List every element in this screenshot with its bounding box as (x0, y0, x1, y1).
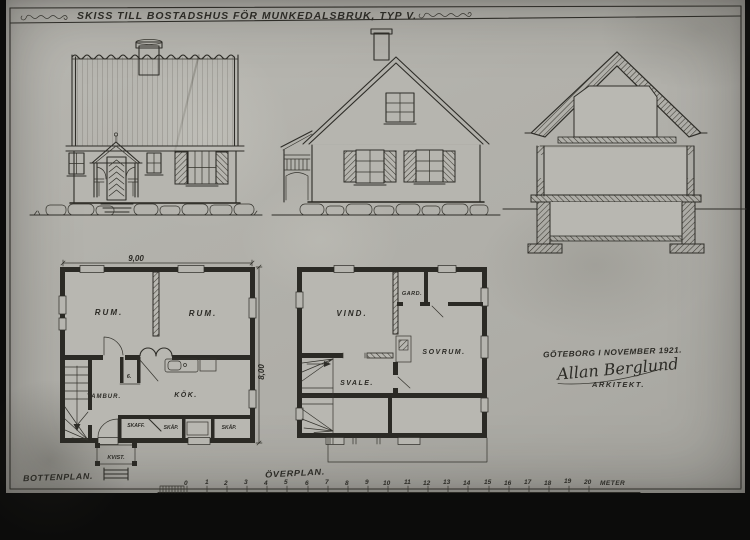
room-label-closet-6: 6. (127, 374, 132, 380)
scale-tick-10: 10 (383, 480, 391, 487)
scale-tick-9: 9 (365, 479, 369, 486)
scale-tick-7: 7 (325, 479, 329, 486)
elevation-front (30, 40, 262, 216)
room-label-kok: KÖK. (174, 390, 198, 399)
floor-plan-overplan: VIND. GARD. SOVRUM. SVALE. (296, 266, 488, 463)
scale-tick-17: 17 (524, 479, 532, 486)
scale-tick-4: 4 (263, 480, 268, 487)
scale-tick-13: 13 (443, 479, 451, 486)
room-label-rum-left: RUM. (95, 308, 123, 317)
ornament-squiggle-left (21, 15, 67, 20)
architectural-drawing: SKISS TILL BOSTADSHUS FÖR MUNKEDALSBRUK,… (0, 0, 750, 501)
scale-tick-12: 12 (423, 480, 431, 487)
dimension-height: 8,00 (257, 364, 266, 380)
room-label-kvist: KVIST. (107, 455, 125, 461)
room-label-gard: GARD. (402, 291, 422, 297)
cross-section (503, 52, 746, 253)
scale-tick-2: 2 (223, 480, 228, 487)
room-label-svale: SVALE. (340, 380, 374, 387)
room-label-skap-1: SKÅP. (164, 424, 179, 431)
scale-tick-19: 19 (564, 478, 572, 485)
room-label-skaff: SKAFF. (127, 423, 145, 429)
signature-block: GÖTEBORG I NOVEMBER 1921. Allan Berglund… (543, 345, 682, 389)
foundation-stones (46, 204, 254, 215)
scale-tick-11: 11 (404, 479, 411, 486)
scale-tick-8: 8 (345, 480, 349, 487)
scale-tick-3: 3 (244, 479, 248, 486)
photograph-background: SKISS TILL BOSTADSHUS FÖR MUNKEDALSBRUK,… (0, 0, 750, 501)
room-label-sovrum: SOVRUM. (422, 349, 465, 356)
scale-tick-14: 14 (463, 480, 471, 487)
scale-tick-16: 16 (504, 480, 512, 487)
architect-role: ARKITEKT. (591, 380, 645, 389)
scale-tick-1: 1 (205, 479, 209, 486)
overplan-label: ÖVERPLAN. (265, 466, 325, 479)
scale-tick-0: 0 (184, 480, 188, 487)
room-label-vind: VIND. (336, 309, 367, 318)
scale-tick-5: 5 (284, 479, 288, 486)
scale-tick-20: 20 (583, 479, 592, 486)
scale-unit: METER (600, 480, 625, 487)
bottenplan-label: BOTTENPLAN. (23, 471, 93, 483)
drawing-title: SKISS TILL BOSTADSHUS FÖR MUNKEDALSBRUK,… (77, 9, 417, 22)
scale-tick-18: 18 (544, 480, 552, 487)
room-label-tambur: TAMBUR. (87, 394, 121, 400)
elevation-gable (272, 29, 500, 215)
room-label-rum-right: RUM. (189, 309, 217, 318)
scale-tick-6: 6 (305, 480, 309, 487)
dimension-width: 9,00 (128, 254, 144, 263)
scale-bar: 0 1 2 3 4 5 6 7 8 9 10 11 12 13 14 15 16… (158, 478, 640, 493)
scale-tick-15: 15 (484, 479, 492, 486)
room-label-skap-2: SKÅP. (222, 424, 237, 431)
floor-plan-bottenplan: RUM. RUM. TAMBUR. KÖK. 6. SKAFF. SKÅP. S… (59, 254, 266, 480)
ornament-squiggle-right (419, 12, 471, 17)
